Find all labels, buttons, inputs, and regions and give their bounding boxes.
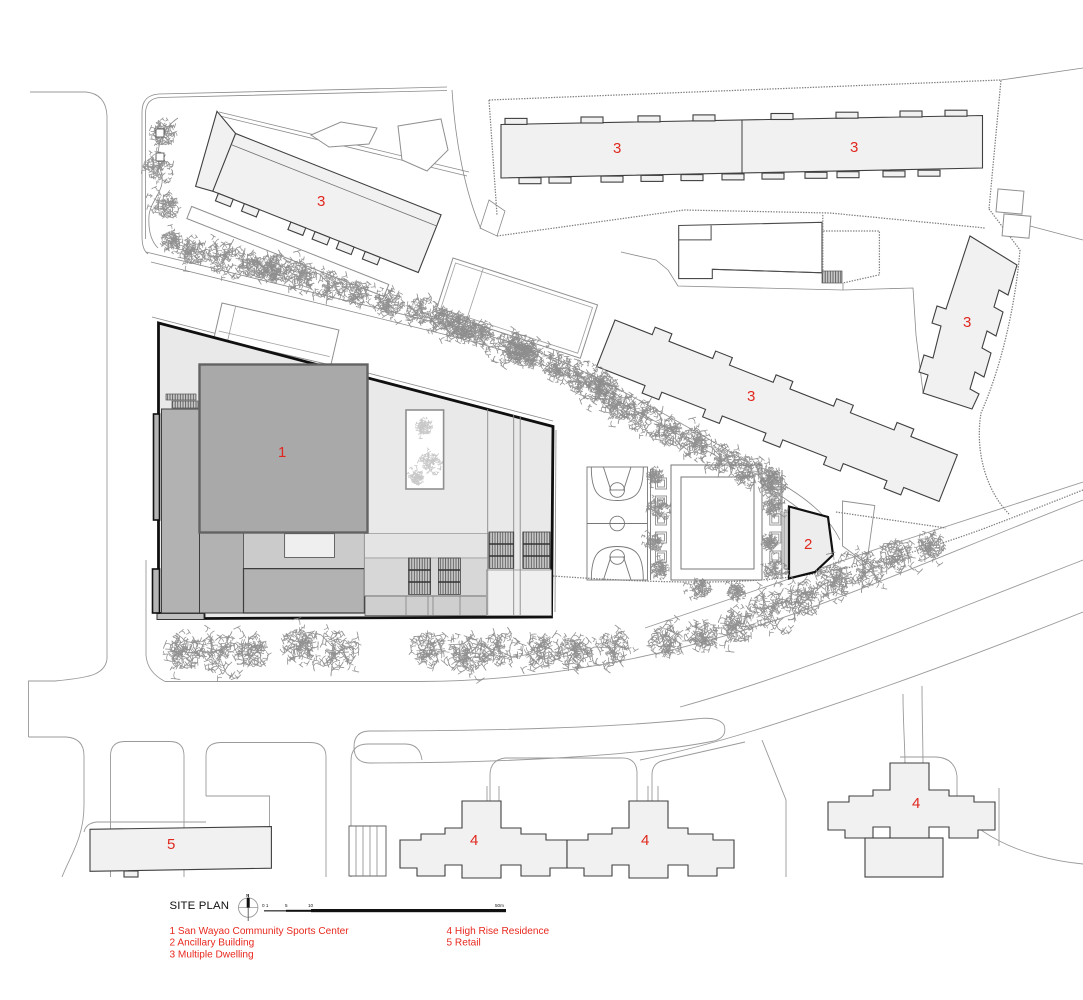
svg-text:4: 4 bbox=[641, 832, 649, 849]
svg-text:4: 4 bbox=[470, 832, 478, 849]
svg-text:5: 5 bbox=[167, 836, 175, 853]
svg-text:SITE PLAN: SITE PLAN bbox=[170, 900, 230, 912]
svg-text:1 San Wayao Community Sports C: 1 San Wayao Community Sports Center bbox=[170, 926, 350, 937]
svg-text:5: 5 bbox=[285, 903, 288, 908]
svg-text:50m: 50m bbox=[495, 903, 504, 908]
svg-text:1: 1 bbox=[278, 444, 286, 461]
svg-text:2: 2 bbox=[804, 536, 812, 553]
svg-text:3: 3 bbox=[963, 314, 971, 331]
svg-text:10: 10 bbox=[308, 903, 314, 908]
svg-text:2 Ancillary Building: 2 Ancillary Building bbox=[170, 938, 255, 949]
svg-text:5 Retail: 5 Retail bbox=[447, 938, 481, 949]
svg-text:4 High Rise Residence: 4 High Rise Residence bbox=[447, 926, 550, 937]
svg-text:3 Multiple Dwelling: 3 Multiple Dwelling bbox=[170, 949, 254, 960]
svg-text:4: 4 bbox=[912, 795, 920, 812]
svg-text:3: 3 bbox=[317, 193, 325, 210]
svg-text:0 1: 0 1 bbox=[262, 903, 269, 908]
svg-text:3: 3 bbox=[747, 388, 755, 405]
svg-text:N: N bbox=[246, 893, 249, 898]
svg-text:3: 3 bbox=[613, 140, 621, 157]
svg-text:3: 3 bbox=[850, 139, 858, 156]
